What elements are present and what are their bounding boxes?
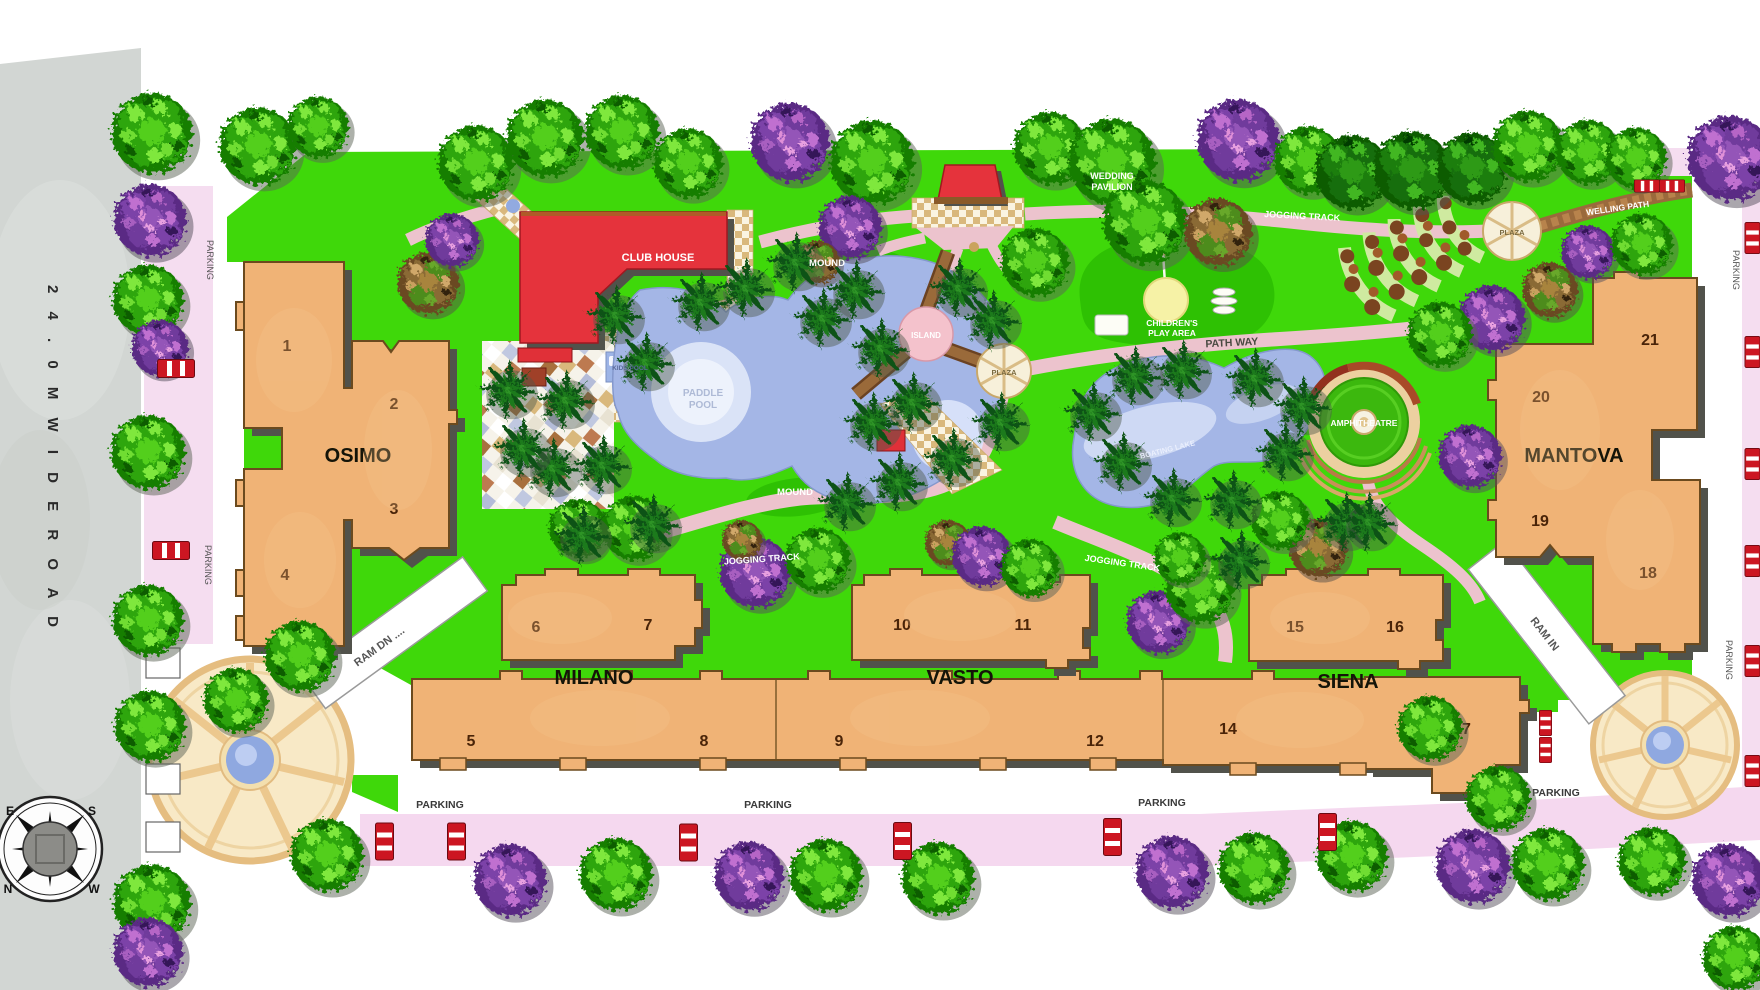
svg-text:ISLAND: ISLAND (911, 331, 941, 340)
svg-text:W: W (88, 882, 100, 896)
svg-text:PLAZA: PLAZA (992, 368, 1018, 377)
svg-text:PARKING: PARKING (1138, 797, 1186, 809)
svg-text:AMPHITHEATRE: AMPHITHEATRE (1331, 418, 1398, 428)
svg-text:MILANO: MILANO (555, 667, 634, 689)
svg-text:E: E (6, 804, 14, 818)
svg-text:11: 11 (1015, 617, 1032, 634)
svg-text:KIDS POOL: KIDS POOL (612, 365, 648, 372)
svg-text:PLAY AREA: PLAY AREA (1148, 328, 1196, 338)
svg-text:7: 7 (644, 617, 653, 634)
svg-text:PAVILION: PAVILION (1091, 182, 1132, 192)
svg-text:PARKING: PARKING (1731, 250, 1741, 290)
svg-text:S: S (88, 804, 96, 818)
svg-text:PADDLE: PADDLE (683, 388, 724, 399)
svg-text:CLUB HOUSE: CLUB HOUSE (622, 252, 695, 264)
svg-text:PARKING: PARKING (203, 545, 213, 585)
svg-text:16: 16 (1386, 619, 1404, 636)
svg-text:N: N (4, 882, 13, 896)
svg-text:WEDDING: WEDDING (1090, 171, 1134, 181)
svg-text:PARKING: PARKING (205, 240, 215, 280)
svg-text:21: 21 (1641, 332, 1659, 349)
svg-text:SIENA: SIENA (1317, 671, 1378, 693)
svg-text:PARKING: PARKING (744, 799, 792, 811)
svg-text:5: 5 (467, 733, 476, 750)
svg-text:12: 12 (1086, 733, 1104, 750)
svg-text:PARKING: PARKING (1724, 640, 1734, 680)
svg-text:8: 8 (700, 733, 709, 750)
svg-text:VASTO: VASTO (926, 667, 993, 689)
svg-text:14: 14 (1219, 721, 1237, 738)
svg-text:MOUND: MOUND (777, 487, 813, 498)
svg-text:PARKING: PARKING (1532, 787, 1580, 799)
svg-text:PARKING: PARKING (416, 799, 464, 811)
svg-text:9: 9 (835, 733, 844, 750)
svg-text:POOL: POOL (689, 400, 717, 411)
svg-text:PLAZA: PLAZA (1500, 228, 1526, 237)
svg-text:2 4 . 0 M W I D E R O A D: 2 4 . 0 M W I D E R O A D (44, 285, 61, 634)
svg-text:19: 19 (1531, 513, 1549, 530)
svg-text:CHILDREN'S: CHILDREN'S (1146, 318, 1198, 328)
svg-text:MOUND: MOUND (809, 258, 845, 269)
